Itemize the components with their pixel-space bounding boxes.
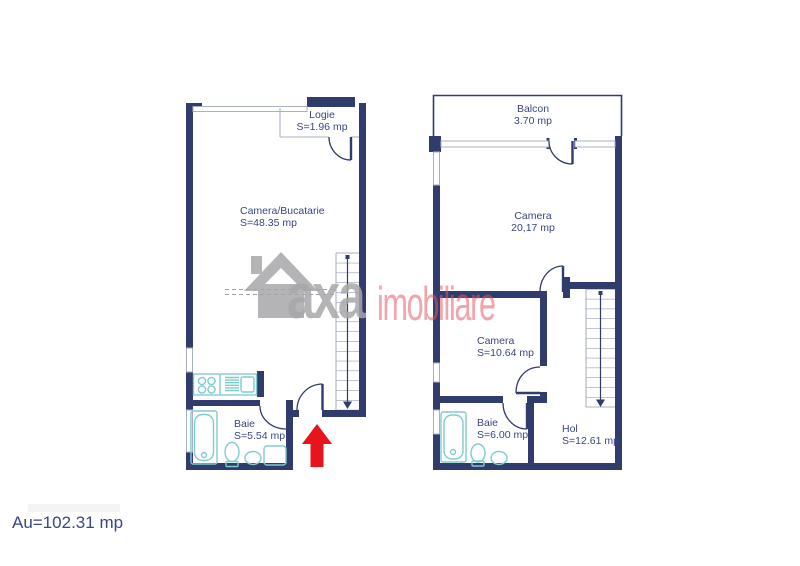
room-label-camera-mare: Camera 20,17 mp	[493, 211, 573, 234]
staircase	[586, 289, 615, 407]
faint-smudge	[28, 504, 120, 512]
room-label-baie-upper: Baie S=6.00 mp	[477, 418, 528, 441]
room-label-camera-mica: Camera S=10.64 mp	[477, 336, 534, 359]
room-label-camera-bucatarie: Camera/Bucatarie S=48.35 mp	[240, 206, 325, 229]
room-label-hol: Hol S=12.61 mp	[562, 424, 619, 447]
watermark-brand-primary: axa	[287, 264, 363, 328]
entrance-up-arrow-icon	[302, 424, 332, 467]
door-arcs	[503, 141, 573, 429]
floor-plan-canvas: axa imobiliare Logie S=1.96 mp Camera/Bu…	[0, 0, 800, 566]
room-label-balcon: Balcon 3.70 mp	[493, 104, 573, 127]
room-label-logie: Logie S=1.96 mp	[287, 110, 357, 133]
kitchen-counter	[194, 374, 257, 395]
watermark-brand-secondary: imobiliare	[377, 280, 495, 327]
total-usable-area-label: Au=102.31 mp	[12, 513, 123, 533]
room-label-baie-lower: Baie S=5.54 mp	[234, 419, 285, 442]
